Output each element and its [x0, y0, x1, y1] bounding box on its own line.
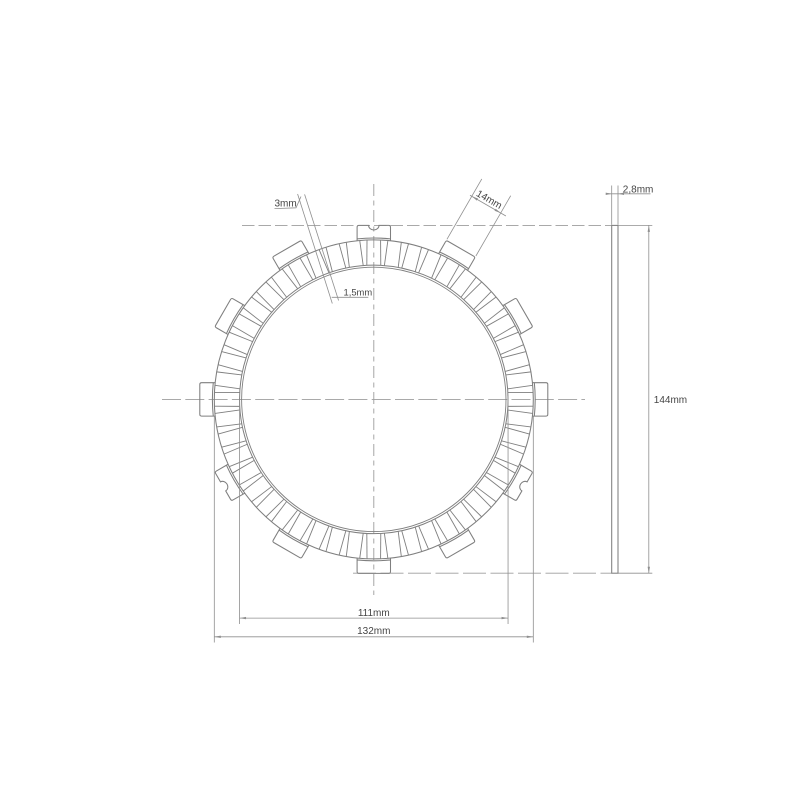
svg-text:132mm: 132mm: [357, 626, 390, 637]
svg-text:111mm: 111mm: [358, 608, 390, 619]
svg-text:2,8mm: 2,8mm: [623, 184, 654, 195]
svg-text:1,5mm: 1,5mm: [344, 287, 373, 298]
svg-text:144mm: 144mm: [654, 395, 687, 406]
svg-text:3mm: 3mm: [275, 199, 297, 210]
